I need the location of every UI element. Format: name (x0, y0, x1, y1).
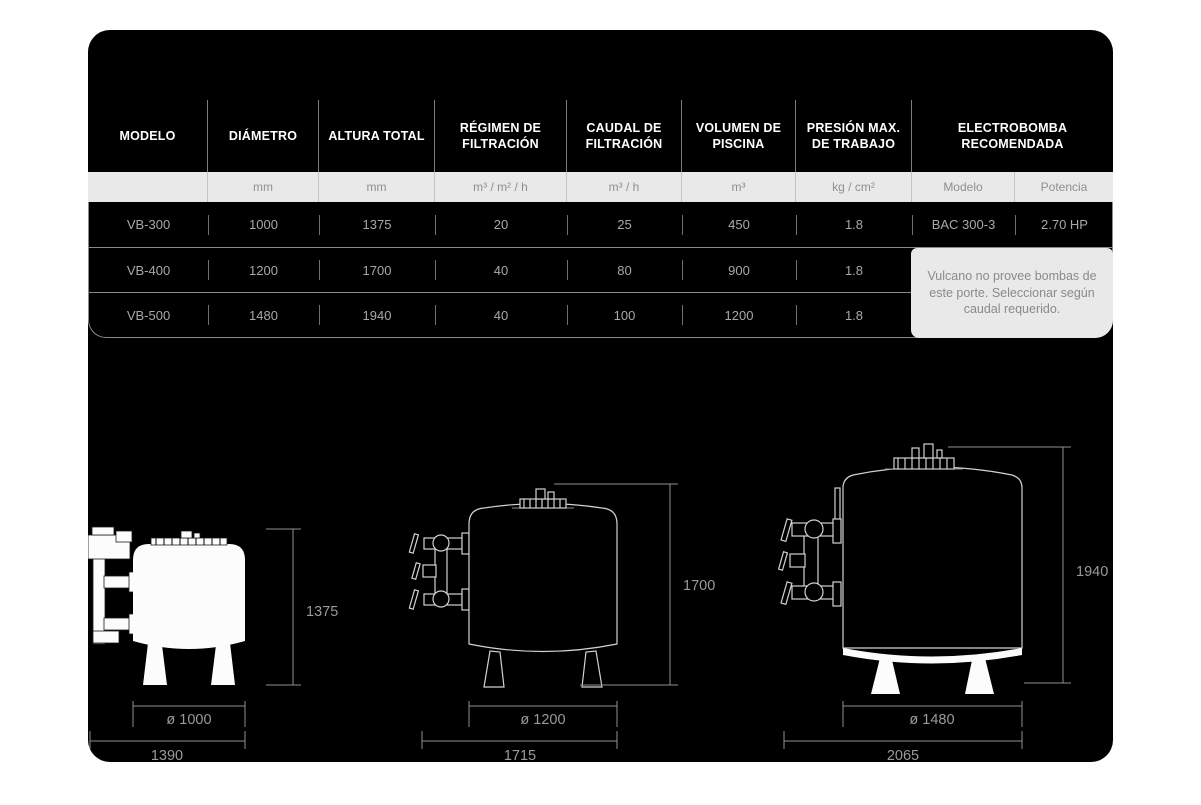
vb500-lid (885, 444, 963, 469)
vb500-diameter-label: ø 1480 (909, 712, 954, 728)
header-volumen-piscina: VOLUMEN DE PISCINA (681, 100, 795, 172)
vb300-width-label: 1390 (151, 748, 183, 762)
unit-presion: kg / cm² (795, 172, 911, 202)
cell-modelo: VB-500 (89, 293, 208, 337)
header-modelo: MODELO (88, 100, 207, 172)
vb300-leg (143, 643, 167, 685)
vb500-tank-body (843, 467, 1022, 648)
vb500-width-label: 2065 (887, 748, 919, 762)
vb400-valve-piping (409, 533, 469, 610)
pump-note: Vulcano no provee bombas de este porte. … (911, 248, 1113, 338)
vb500-leg (965, 658, 994, 694)
tank-diagram-vb300: 1375 ø 1000 1390 (88, 527, 338, 762)
header-altura-total: ALTURA TOTAL (318, 100, 434, 172)
header-regimen-filtracion: RÉGIMEN DE FILTRACIÓN (434, 100, 566, 172)
header-presion-max: PRESIÓN MAX. DE TRABAJO (795, 100, 911, 172)
cell-volumen: 450 (682, 202, 796, 247)
cell-volumen: 1200 (682, 293, 796, 337)
cell-diametro: 1480 (208, 293, 319, 337)
cell-altura: 1700 (319, 248, 435, 292)
cell-presion: 1.8 (796, 202, 912, 247)
cell-modelo: VB-400 (89, 248, 208, 292)
vb400-leg (484, 651, 504, 687)
vb400-width-label: 1715 (504, 748, 536, 762)
vb500-leg (871, 658, 900, 694)
cell-bomba-potencia: 2.70 HP (1015, 202, 1113, 247)
unit-altura: mm (318, 172, 434, 202)
vb400-tank-body (469, 504, 617, 652)
unit-bomba-potencia: Potencia (1014, 172, 1113, 202)
cell-altura: 1375 (319, 202, 435, 247)
vb300-tank-body (133, 544, 245, 649)
unit-regimen: m³ / m² / h (434, 172, 566, 202)
vb500-bottom-dish (843, 648, 1022, 664)
cell-altura: 1940 (319, 293, 435, 337)
header-diametro: DIÁMETRO (207, 100, 318, 172)
vb400-leg (582, 651, 602, 687)
cell-diametro: 1200 (208, 248, 319, 292)
vb400-lid (512, 489, 574, 508)
vb500-valve-piping (779, 488, 841, 606)
vb300-diameter-label: ø 1000 (166, 712, 211, 728)
cell-regimen: 40 (435, 293, 567, 337)
tank-technical-drawings: 1375 ø 1000 1390 (88, 338, 1113, 762)
tank-diagram-vb500: 1940 ø 1480 2065 (779, 444, 1109, 762)
cell-caudal: 100 (567, 293, 682, 337)
cell-caudal: 25 (567, 202, 682, 247)
cell-presion: 1.8 (796, 248, 912, 292)
cell-regimen: 20 (435, 202, 567, 247)
vb400-diameter-label: ø 1200 (520, 712, 565, 728)
vb300-valve-piping (88, 527, 135, 644)
cell-diametro: 1000 (208, 202, 319, 247)
cell-presion: 1.8 (796, 293, 912, 337)
table-header-row: MODELO DIÁMETRO ALTURA TOTAL RÉGIMEN DE … (88, 30, 1113, 172)
cell-modelo: VB-300 (89, 202, 208, 247)
vb300-lid (151, 531, 227, 545)
unit-diametro: mm (207, 172, 318, 202)
vb500-height-label: 1940 (1076, 564, 1108, 580)
vb300-leg (211, 643, 235, 685)
cell-regimen: 40 (435, 248, 567, 292)
cell-caudal: 80 (567, 248, 682, 292)
vb400-height-label: 1700 (683, 578, 715, 594)
table-units-row: mm mm m³ / m² / h m³ / h m³ kg / cm² Mod… (88, 172, 1113, 202)
unit-caudal: m³ / h (566, 172, 681, 202)
unit-volumen: m³ (681, 172, 795, 202)
vb300-height-label: 1375 (306, 604, 338, 620)
unit-bomba-modelo: Modelo (911, 172, 1014, 202)
header-electrobomba: ELECTROBOMBA RECOMENDADA (911, 100, 1113, 172)
unit-modelo (88, 172, 207, 202)
spec-sheet-card: MODELO DIÁMETRO ALTURA TOTAL RÉGIMEN DE … (88, 30, 1113, 762)
cell-volumen: 900 (682, 248, 796, 292)
header-caudal-filtracion: CAUDAL DE FILTRACIÓN (566, 100, 681, 172)
table-row-vb300: VB-300 1000 1375 20 25 450 1.8 BAC 300-3… (89, 202, 1112, 247)
cell-bomba-modelo: BAC 300-3 (912, 202, 1015, 247)
tank-diagram-vb400: 1700 ø 1200 1715 (409, 484, 715, 762)
